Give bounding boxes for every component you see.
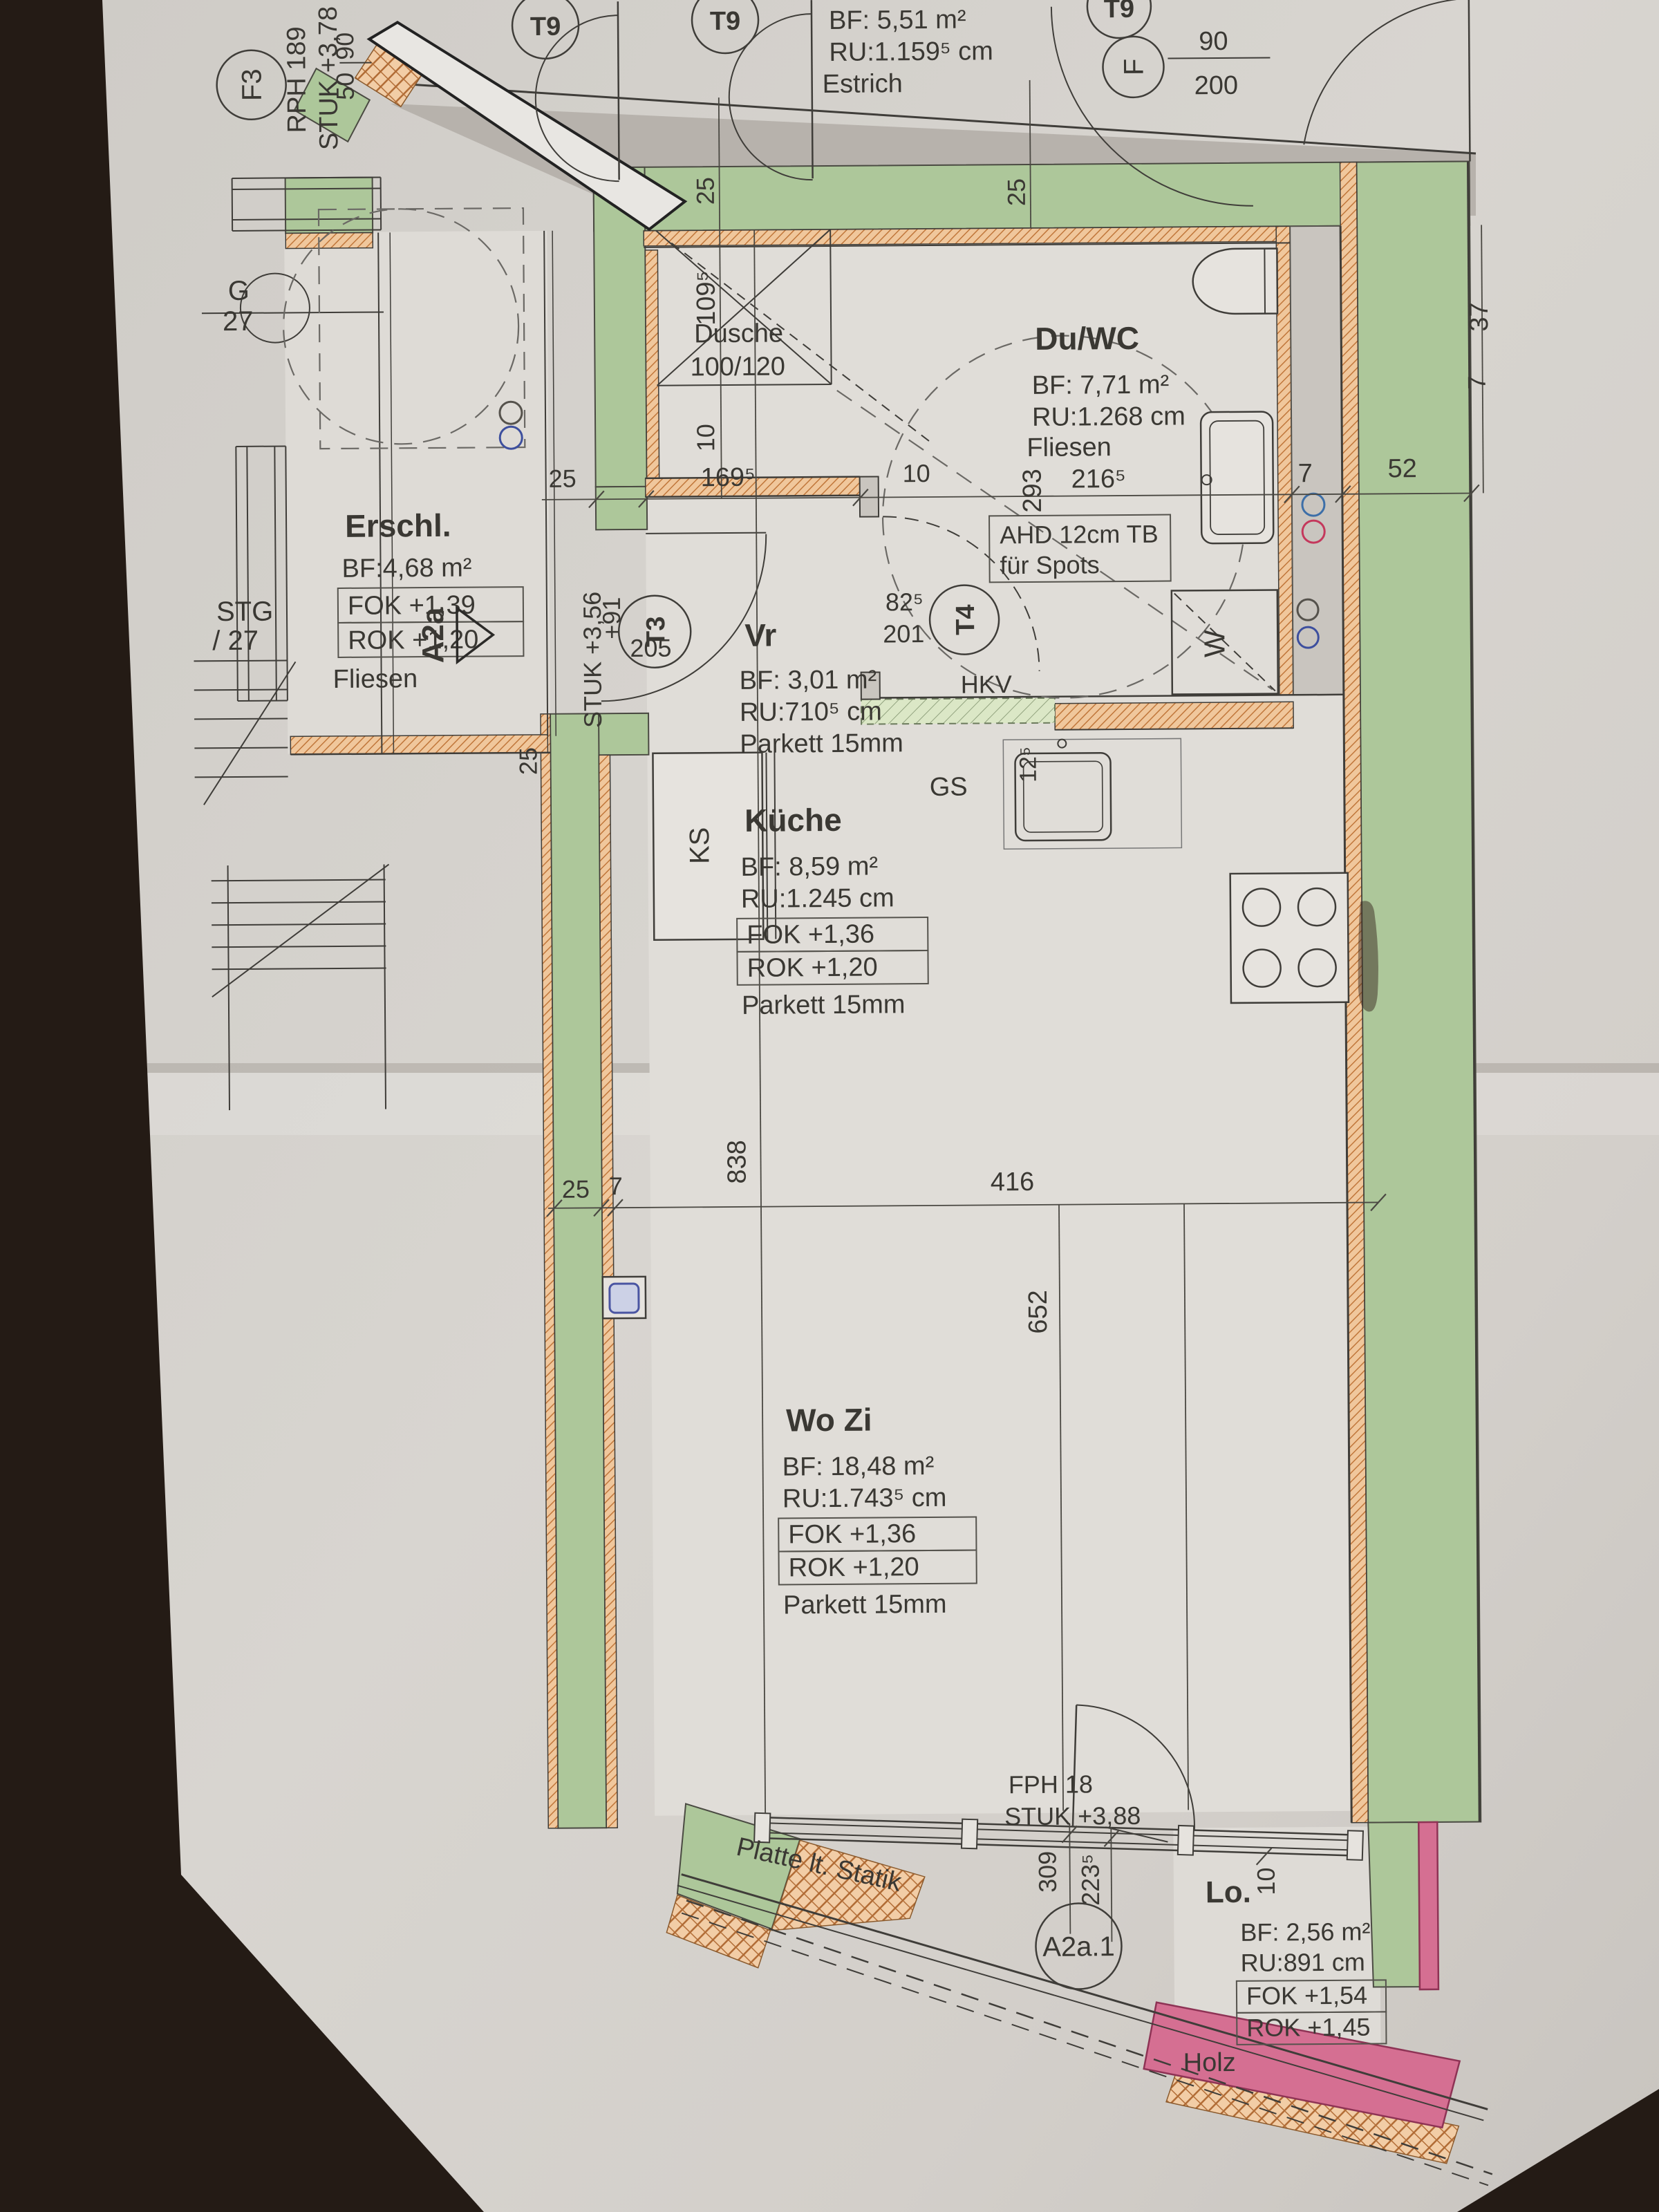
dim-25-entry: 25 — [549, 465, 577, 493]
dim-50-top: 50 — [331, 73, 359, 100]
marker-t3: T3 — [641, 616, 671, 647]
vr-ru: RU:710⁵ cm — [740, 697, 882, 727]
label-g: G — [228, 276, 250, 306]
room-label-duwc: Du/WC — [1035, 320, 1139, 357]
dim-838: 838 — [722, 1140, 751, 1184]
room-label-erschl: Erschl. — [345, 507, 451, 544]
dim-201: 201 — [883, 619, 924, 648]
stair-wall-stub-b — [285, 178, 373, 234]
dim-10-dusche: 10 — [691, 424, 720, 451]
label-hkv: HKV — [961, 670, 1012, 699]
kueche-rok: ROK +1,20 — [747, 953, 877, 983]
toproom-ru: RU:1.159⁵ cm — [829, 37, 993, 67]
marker-t9a: T9 — [530, 12, 561, 41]
dim-7-wall: 7 — [1297, 459, 1312, 488]
wozi-fok: FOK +1,36 — [788, 1519, 916, 1549]
dim-90-door: 90 — [1199, 27, 1228, 56]
marker-t9b: T9 — [710, 7, 741, 36]
dim-25-dusche-a: 25 — [691, 177, 720, 205]
erschl-floor: Fliesen — [333, 664, 418, 694]
stove — [1230, 873, 1349, 1003]
wozi-bf: BF: 18,48 m² — [782, 1452, 934, 1482]
marker-f3: F3 — [237, 68, 268, 101]
ahd-line2: für Spots — [1000, 550, 1099, 579]
ahd-line1: AHD 12cm TB — [1000, 520, 1159, 550]
niche-box — [610, 1284, 639, 1313]
marker-t4: T4 — [951, 604, 980, 635]
label-washing-machine: W — [1198, 630, 1230, 657]
dim-125: 12⁵ — [1015, 747, 1041, 782]
kueche-ru: RU:1.245 cm — [741, 883, 894, 914]
dim-2165: 216⁵ — [1071, 465, 1126, 494]
kueche-bf: BF: 8,59 m² — [740, 852, 878, 882]
toproom-floor: Estrich — [823, 69, 903, 99]
dim-293: 293 — [1018, 469, 1047, 513]
room-label-lo: Lo. — [1206, 1875, 1251, 1909]
marker-a2a1: A2a.1 — [1042, 1931, 1115, 1962]
toilet-cistern-line — [1264, 249, 1265, 314]
duwc-ru: RU:1.268 cm — [1032, 402, 1185, 432]
lo-ru: RU:891 cm — [1241, 1948, 1365, 1977]
wozi-ru: RU:1.743⁵ cm — [782, 1483, 947, 1514]
wozi-rok: ROK +1,20 — [789, 1553, 919, 1582]
dim-7-wozi: 7 — [609, 1172, 623, 1200]
label-stg: STG — [216, 597, 274, 628]
vr-floor: Parkett 15mm — [740, 729, 903, 759]
label-fridge-ks: KS — [684, 827, 715, 864]
dim-52-wall: 52 — [1387, 454, 1417, 483]
dim-825: 82⁵ — [885, 588, 924, 616]
label-dusche-size: 100/120 — [690, 352, 785, 382]
dim-90-top: 90 — [330, 32, 359, 60]
label-rph: RPH 189 — [282, 26, 312, 133]
marker-f: F — [1118, 59, 1149, 76]
floorplan-svg: F3 RPH 189 STUK +3,78 90 50 G 27 STG / 2… — [0, 0, 1659, 2212]
dim-10-lo: 10 — [1252, 1867, 1280, 1895]
dim-25-wozi: 25 — [562, 1174, 590, 1203]
label-dishwasher-gs: GS — [930, 773, 968, 802]
erschl-bf: BF:4,68 m² — [341, 554, 471, 583]
dim-25-dusche-b: 25 — [1002, 178, 1031, 206]
room-label-wozi: Wo Zi — [786, 1402, 872, 1438]
lo-bf: BF: 2,56 m² — [1240, 1918, 1370, 1947]
lo-rok: ROK +1,45 — [1246, 2013, 1370, 2042]
dim-37: 37 — [1465, 302, 1494, 332]
label-stg27: / 27 — [212, 626, 259, 656]
dim-7-vert: 7 — [1463, 375, 1491, 389]
marker-t9c: T9 — [1104, 0, 1135, 24]
label-fph18: FPH 18 — [1009, 1770, 1093, 1799]
dim-416: 416 — [991, 1168, 1035, 1197]
room-label-vr: Vr — [744, 617, 777, 653]
dim-652: 652 — [1024, 1290, 1053, 1334]
dim-1095: 109⁵ — [692, 270, 722, 325]
drywall-hkv — [861, 698, 1055, 724]
toproom-bf: BF: 5,51 m² — [829, 6, 966, 35]
erschl-rok: ROK +1,20 — [348, 626, 478, 655]
lo-floor: Holz — [1183, 2048, 1236, 2078]
section-marker-a2a: A2a — [416, 607, 451, 664]
duwc-floor: Fliesen — [1027, 433, 1112, 462]
wozi-floor: Parkett 15mm — [783, 1590, 947, 1620]
dim-1695: 169⁵ — [701, 463, 756, 493]
floorplan-photo: F3 RPH 189 STUK +3,78 90 50 G 27 STG / 2… — [0, 0, 1659, 2212]
kueche-fok: FOK +1,36 — [747, 920, 874, 950]
label-g27: 27 — [223, 306, 254, 337]
vr-bf: BF: 3,01 m² — [740, 666, 877, 695]
dim-2235: 223⁵ — [1076, 1854, 1105, 1906]
duwc-bf: BF: 7,71 m² — [1032, 371, 1170, 400]
door-jamb-upper — [860, 476, 879, 516]
label-stuk-388: STUK +3,88 — [1004, 1801, 1141, 1830]
room-label-kueche: Küche — [744, 802, 842, 838]
lo-fok: FOK +1,54 — [1246, 1981, 1367, 2010]
dim-25-west: 25 — [514, 747, 542, 775]
dim-309: 309 — [1033, 1851, 1062, 1893]
dim-200-door: 200 — [1194, 71, 1239, 100]
dim-10-entry: 10 — [902, 459, 930, 487]
kueche-floor: Parkett 15mm — [742, 990, 906, 1020]
